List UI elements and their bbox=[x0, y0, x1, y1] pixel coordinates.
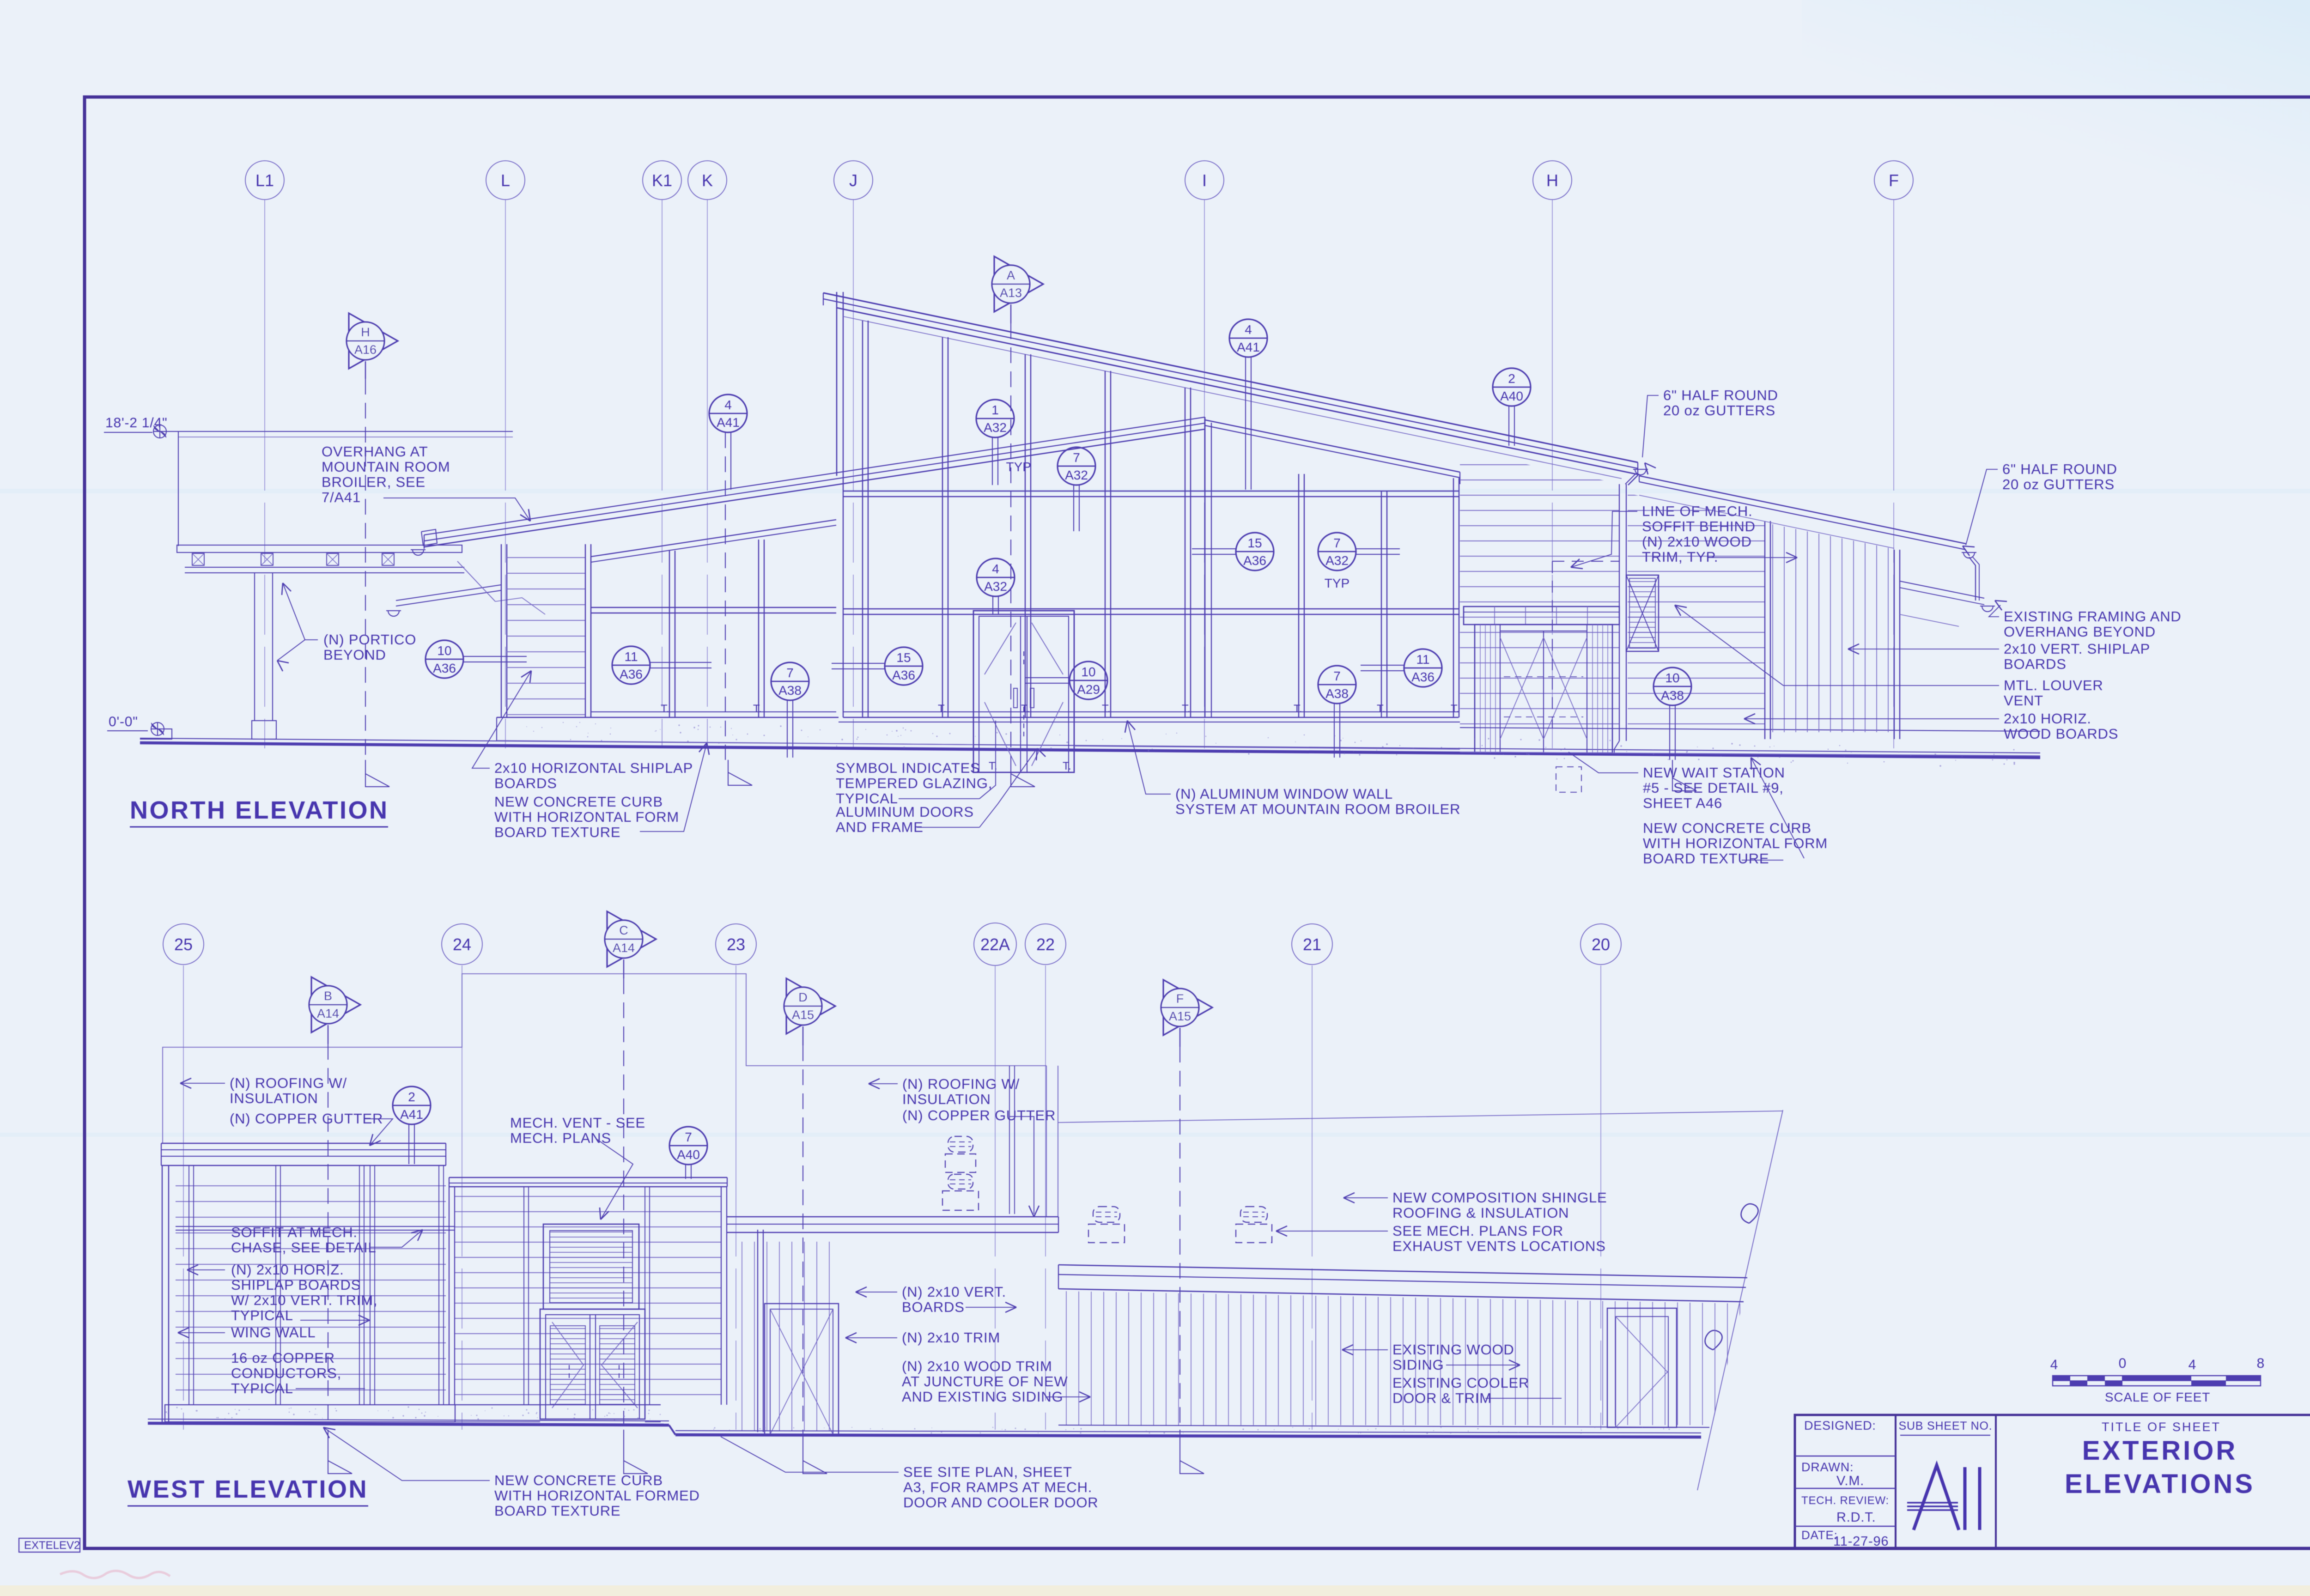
svg-text:A38: A38 bbox=[1325, 686, 1349, 701]
svg-text:20 oz GUTTERS: 20 oz GUTTERS bbox=[2002, 476, 2115, 492]
svg-text:BOARDS: BOARDS bbox=[2004, 656, 2067, 672]
svg-text:AT JUNCTURE OF NEW: AT JUNCTURE OF NEW bbox=[902, 1373, 1068, 1390]
svg-text:BOARD TEXTURE: BOARD TEXTURE bbox=[494, 1503, 620, 1519]
svg-text:8: 8 bbox=[2257, 1356, 2265, 1371]
svg-text:TECH. REVIEW:: TECH. REVIEW: bbox=[1801, 1494, 1889, 1507]
svg-text:2x10 VERT. SHIPLAP: 2x10 VERT. SHIPLAP bbox=[2004, 641, 2150, 657]
svg-text:SEE SITE PLAN, SHEET: SEE SITE PLAN, SHEET bbox=[903, 1464, 1072, 1480]
svg-text:21: 21 bbox=[1303, 935, 1321, 954]
svg-text:15: 15 bbox=[1247, 536, 1262, 550]
svg-text:A38: A38 bbox=[1661, 688, 1684, 703]
svg-text:TYP: TYP bbox=[1006, 460, 1031, 474]
svg-text:T.: T. bbox=[1021, 703, 1030, 715]
svg-text:7/A41: 7/A41 bbox=[322, 489, 361, 505]
svg-text:BROILER, SEE: BROILER, SEE bbox=[322, 474, 426, 490]
svg-text:11-27-96: 11-27-96 bbox=[1833, 1534, 1889, 1549]
svg-text:VENT: VENT bbox=[2004, 692, 2043, 709]
svg-text:T.: T. bbox=[753, 703, 762, 715]
svg-text:OVERHANG BEYOND: OVERHANG BEYOND bbox=[2004, 624, 2156, 640]
svg-text:T.: T. bbox=[1451, 703, 1459, 715]
svg-text:4: 4 bbox=[2188, 1357, 2196, 1372]
svg-text:TEMPERED GLAZING,: TEMPERED GLAZING, bbox=[836, 775, 992, 791]
svg-text:INSULATION: INSULATION bbox=[902, 1091, 991, 1107]
svg-text:R.D.T.: R.D.T. bbox=[1836, 1510, 1876, 1525]
svg-text:(N) 2x10 WOOD: (N) 2x10 WOOD bbox=[1642, 534, 1752, 550]
svg-text:A36: A36 bbox=[620, 667, 643, 681]
svg-text:(N) COPPER GUTTER: (N) COPPER GUTTER bbox=[230, 1111, 383, 1127]
svg-text:24: 24 bbox=[453, 935, 471, 954]
svg-text:F: F bbox=[1889, 171, 1899, 190]
svg-text:NEW WAIT STATION: NEW WAIT STATION bbox=[1643, 765, 1785, 781]
svg-text:L: L bbox=[501, 171, 510, 190]
svg-text:DATE:: DATE: bbox=[1801, 1528, 1838, 1542]
svg-text:(N) PORTICO: (N) PORTICO bbox=[323, 631, 416, 648]
svg-text:A36: A36 bbox=[1411, 670, 1435, 684]
svg-text:LINE OF MECH.: LINE OF MECH. bbox=[1642, 503, 1752, 519]
svg-text:2: 2 bbox=[408, 1090, 415, 1104]
svg-text:6" HALF ROUND: 6" HALF ROUND bbox=[2002, 461, 2117, 477]
svg-text:(N) ROOFING W/: (N) ROOFING W/ bbox=[230, 1075, 347, 1091]
svg-text:NEW CONCRETE CURB: NEW CONCRETE CURB bbox=[1643, 820, 1812, 836]
svg-text:A41: A41 bbox=[1237, 340, 1260, 354]
svg-text:15: 15 bbox=[896, 650, 911, 665]
svg-text:D: D bbox=[798, 990, 808, 1004]
svg-text:A15: A15 bbox=[1169, 1009, 1191, 1023]
svg-text:11: 11 bbox=[1416, 652, 1429, 667]
svg-text:(N) 2x10 VERT.: (N) 2x10 VERT. bbox=[902, 1284, 1006, 1300]
svg-text:7: 7 bbox=[1073, 450, 1080, 465]
svg-text:A29: A29 bbox=[1077, 682, 1100, 697]
svg-text:A32: A32 bbox=[1325, 553, 1349, 568]
svg-text:22A: 22A bbox=[980, 935, 1010, 954]
svg-text:EXISTING COOLER: EXISTING COOLER bbox=[1392, 1375, 1529, 1391]
svg-text:BOARD TEXTURE: BOARD TEXTURE bbox=[1643, 850, 1769, 867]
svg-text:10: 10 bbox=[1665, 671, 1679, 685]
svg-text:SCALE OF FEET: SCALE OF FEET bbox=[2105, 1390, 2210, 1404]
svg-text:T.: T. bbox=[1102, 703, 1111, 715]
svg-text:SYMBOL INDICATES: SYMBOL INDICATES bbox=[836, 760, 980, 776]
svg-text:25: 25 bbox=[174, 935, 193, 954]
svg-text:BOARDS: BOARDS bbox=[494, 775, 557, 791]
svg-text:SEE MECH. PLANS FOR: SEE MECH. PLANS FOR bbox=[1392, 1223, 1563, 1239]
svg-text:2x10 HORIZ.: 2x10 HORIZ. bbox=[2004, 710, 2091, 727]
svg-text:H: H bbox=[361, 325, 370, 339]
svg-text:TRIM, TYP.: TRIM, TYP. bbox=[1642, 549, 1718, 565]
svg-text:SOFFIT AT MECH.: SOFFIT AT MECH. bbox=[231, 1224, 358, 1240]
svg-text:WING WALL: WING WALL bbox=[231, 1324, 316, 1341]
svg-text:WEST ELEVATION: WEST ELEVATION bbox=[128, 1475, 368, 1503]
svg-text:T.: T. bbox=[661, 703, 669, 715]
svg-text:T.: T. bbox=[1377, 703, 1386, 715]
svg-text:T.: T. bbox=[938, 703, 947, 715]
svg-text:DOOR & TRIM: DOOR & TRIM bbox=[1392, 1390, 1492, 1406]
svg-text:A40: A40 bbox=[1500, 389, 1523, 403]
svg-text:WITH HORIZONTAL FORM: WITH HORIZONTAL FORM bbox=[1643, 835, 1828, 851]
svg-text:T.: T. bbox=[1063, 760, 1071, 772]
svg-text:A32: A32 bbox=[1065, 468, 1088, 482]
svg-text:I: I bbox=[1202, 171, 1207, 190]
svg-text:20 oz GUTTERS: 20 oz GUTTERS bbox=[1663, 402, 1775, 419]
svg-text:DOOR AND COOLER DOOR: DOOR AND COOLER DOOR bbox=[903, 1494, 1099, 1511]
svg-text:NEW COMPOSITION SHINGLE: NEW COMPOSITION SHINGLE bbox=[1392, 1189, 1607, 1206]
svg-text:7: 7 bbox=[1333, 669, 1341, 683]
svg-text:ROOFING & INSULATION: ROOFING & INSULATION bbox=[1392, 1205, 1569, 1221]
svg-text:EXISTING WOOD: EXISTING WOOD bbox=[1392, 1341, 1514, 1358]
svg-text:H: H bbox=[1546, 171, 1558, 190]
svg-text:TITLE OF SHEET: TITLE OF SHEET bbox=[2102, 1420, 2221, 1434]
svg-text:A40: A40 bbox=[677, 1147, 700, 1162]
svg-text:MTL. LOUVER: MTL. LOUVER bbox=[2004, 677, 2103, 693]
svg-text:7: 7 bbox=[786, 666, 794, 680]
svg-text:NEW CONCRETE CURB: NEW CONCRETE CURB bbox=[494, 794, 663, 810]
svg-text:SOFFIT BEHIND: SOFFIT BEHIND bbox=[1642, 518, 1756, 534]
svg-text:A32: A32 bbox=[984, 420, 1007, 435]
svg-text:MECH. PLANS: MECH. PLANS bbox=[510, 1130, 611, 1146]
svg-text:L1: L1 bbox=[255, 171, 274, 190]
svg-text:BOARDS: BOARDS bbox=[902, 1299, 965, 1315]
svg-text:2x10 HORIZONTAL SHIPLAP: 2x10 HORIZONTAL SHIPLAP bbox=[494, 760, 693, 776]
svg-text:A38: A38 bbox=[778, 683, 802, 698]
svg-text:16 oz COPPER: 16 oz COPPER bbox=[231, 1350, 335, 1366]
svg-text:4: 4 bbox=[992, 562, 999, 576]
svg-text:7: 7 bbox=[685, 1130, 692, 1144]
svg-text:(N) ALUMINUM WINDOW WALL: (N) ALUMINUM WINDOW WALL bbox=[1175, 786, 1393, 802]
svg-text:ALUMINUM DOORS: ALUMINUM DOORS bbox=[836, 804, 974, 820]
svg-text:SUB SHEET NO.: SUB SHEET NO. bbox=[1898, 1420, 1992, 1432]
svg-text:10: 10 bbox=[437, 643, 451, 658]
svg-text:18'-2 1/4": 18'-2 1/4" bbox=[105, 415, 167, 431]
svg-text:NORTH ELEVATION: NORTH ELEVATION bbox=[130, 796, 389, 824]
svg-text:(N) COPPER GUTTER: (N) COPPER GUTTER bbox=[902, 1107, 1056, 1123]
svg-text:A15: A15 bbox=[792, 1008, 814, 1022]
svg-text:A14: A14 bbox=[317, 1007, 339, 1020]
svg-text:B: B bbox=[324, 989, 332, 1003]
svg-text:C: C bbox=[619, 923, 628, 937]
svg-text:20: 20 bbox=[1592, 935, 1610, 954]
svg-text:INSULATION: INSULATION bbox=[230, 1090, 318, 1106]
svg-text:J: J bbox=[849, 171, 857, 190]
svg-text:WOOD BOARDS: WOOD BOARDS bbox=[2004, 726, 2118, 742]
svg-text:CONDUCTORS,: CONDUCTORS, bbox=[231, 1365, 341, 1381]
svg-text:4: 4 bbox=[1245, 322, 1252, 337]
svg-text:A14: A14 bbox=[613, 941, 635, 955]
svg-text:6" HALF ROUND: 6" HALF ROUND bbox=[1663, 387, 1778, 403]
svg-text:SYSTEM AT MOUNTAIN ROOM BROILE: SYSTEM AT MOUNTAIN ROOM BROILER bbox=[1175, 801, 1460, 817]
svg-text:EXTERIOR: EXTERIOR bbox=[2082, 1436, 2238, 1466]
svg-text:OVERHANG AT: OVERHANG AT bbox=[322, 443, 428, 460]
svg-text:AND EXISTING SIDING: AND EXISTING SIDING bbox=[902, 1389, 1063, 1405]
svg-text:A41: A41 bbox=[717, 415, 740, 430]
svg-text:(N) 2x10 WOOD TRIM: (N) 2x10 WOOD TRIM bbox=[902, 1358, 1052, 1374]
svg-text:EXHAUST VENTS LOCATIONS: EXHAUST VENTS LOCATIONS bbox=[1392, 1238, 1606, 1254]
svg-text:A: A bbox=[1007, 268, 1015, 282]
svg-text:A41: A41 bbox=[400, 1107, 423, 1122]
svg-text:0: 0 bbox=[2119, 1356, 2127, 1371]
svg-text:EXTELEV2: EXTELEV2 bbox=[24, 1539, 80, 1552]
svg-text:0'-0": 0'-0" bbox=[109, 714, 138, 729]
svg-text:7: 7 bbox=[1333, 536, 1341, 550]
svg-text:DRAWN:: DRAWN: bbox=[1801, 1460, 1854, 1474]
svg-text:A16: A16 bbox=[354, 343, 377, 357]
svg-text:(N) 2x10 HORIZ.: (N) 2x10 HORIZ. bbox=[231, 1262, 344, 1278]
svg-text:4: 4 bbox=[724, 398, 732, 412]
svg-text:11: 11 bbox=[624, 649, 638, 664]
svg-text:(N) 2x10 TRIM: (N) 2x10 TRIM bbox=[902, 1329, 1000, 1346]
svg-text:CHASE, SEE DETAIL: CHASE, SEE DETAIL bbox=[231, 1239, 377, 1256]
svg-text:23: 23 bbox=[727, 935, 745, 954]
svg-text:K: K bbox=[702, 171, 713, 190]
svg-text:WITH HORIZONTAL FORM: WITH HORIZONTAL FORM bbox=[494, 809, 679, 825]
svg-text:4: 4 bbox=[2050, 1357, 2058, 1372]
svg-text:NEW CONCRETE CURB: NEW CONCRETE CURB bbox=[494, 1472, 663, 1488]
svg-text:ELEVATIONS: ELEVATIONS bbox=[2065, 1469, 2255, 1499]
svg-text:AND FRAME: AND FRAME bbox=[836, 819, 924, 835]
svg-text:V.M.: V.M. bbox=[1836, 1474, 1864, 1488]
svg-text:#5 - SEE DETAIL #9,: #5 - SEE DETAIL #9, bbox=[1643, 780, 1784, 796]
svg-text:SIDING: SIDING bbox=[1392, 1357, 1444, 1373]
svg-text:A36: A36 bbox=[892, 668, 915, 682]
svg-text:A3, FOR RAMPS AT MECH.: A3, FOR RAMPS AT MECH. bbox=[903, 1479, 1092, 1495]
svg-text:A13: A13 bbox=[1000, 286, 1022, 300]
svg-text:WITH HORIZONTAL FORMED: WITH HORIZONTAL FORMED bbox=[494, 1487, 700, 1504]
svg-text:W/ 2x10 VERT. TRIM,: W/ 2x10 VERT. TRIM, bbox=[231, 1292, 377, 1308]
svg-text:(N) ROOFING W/: (N) ROOFING W/ bbox=[902, 1076, 1020, 1092]
svg-text:T.: T. bbox=[1294, 703, 1302, 715]
svg-text:BEYOND: BEYOND bbox=[323, 647, 386, 663]
svg-text:TYPICAL: TYPICAL bbox=[231, 1307, 293, 1323]
svg-text:SHIPLAP BOARDS: SHIPLAP BOARDS bbox=[231, 1277, 361, 1293]
svg-text:TYP: TYP bbox=[1325, 576, 1350, 590]
svg-text:F: F bbox=[1176, 992, 1184, 1006]
svg-text:A36: A36 bbox=[1243, 553, 1266, 568]
svg-text:10: 10 bbox=[1081, 665, 1095, 679]
svg-text:T.: T. bbox=[1182, 703, 1191, 715]
svg-text:A32: A32 bbox=[984, 579, 1007, 594]
svg-text:K1: K1 bbox=[652, 171, 672, 190]
svg-text:1: 1 bbox=[991, 403, 999, 417]
svg-text:A36: A36 bbox=[433, 661, 456, 675]
svg-text:2: 2 bbox=[1508, 371, 1515, 386]
svg-text:EXISTING FRAMING AND: EXISTING FRAMING AND bbox=[2004, 608, 2182, 625]
svg-text:SHEET A46: SHEET A46 bbox=[1643, 795, 1722, 811]
svg-text:MECH. VENT - SEE: MECH. VENT - SEE bbox=[510, 1115, 645, 1131]
svg-text:BOARD TEXTURE: BOARD TEXTURE bbox=[494, 824, 620, 840]
svg-text:22: 22 bbox=[1036, 935, 1055, 954]
svg-text:MOUNTAIN ROOM: MOUNTAIN ROOM bbox=[322, 459, 450, 475]
svg-text:DESIGNED:: DESIGNED: bbox=[1804, 1419, 1876, 1432]
svg-text:TYPICAL: TYPICAL bbox=[231, 1380, 293, 1396]
